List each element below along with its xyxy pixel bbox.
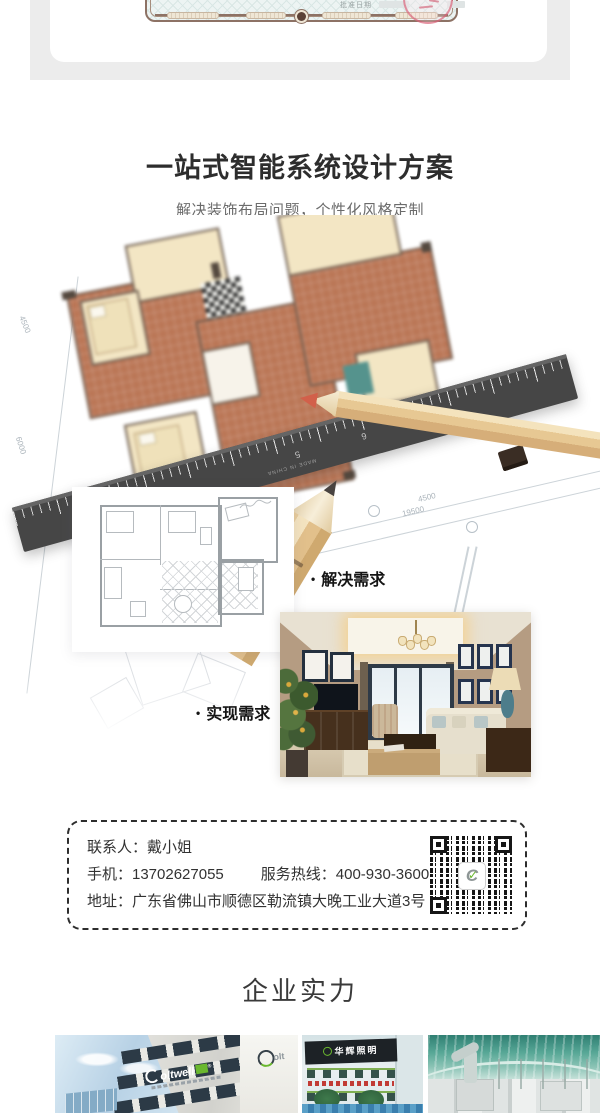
building-tower bbox=[395, 1035, 423, 1113]
strength-gallery: oltwell® olt 华辉照明 bbox=[0, 1035, 600, 1113]
contact-phone: 手机：13702627055 bbox=[87, 866, 224, 883]
fascia-logo: olt bbox=[257, 1045, 294, 1078]
bead-segment bbox=[246, 12, 286, 19]
dimension-label: 4500 bbox=[17, 315, 32, 335]
bullet-icon: • bbox=[196, 706, 200, 720]
ruler-number: 6 bbox=[360, 431, 368, 442]
certificate-card: 批准日期 bbox=[50, 0, 547, 62]
machine-unit bbox=[456, 1079, 494, 1111]
dimension-label: 6000 bbox=[14, 436, 28, 456]
label-realize-requirement: •实现需求 bbox=[196, 700, 270, 724]
contact-address: 地址：广东省佛山市顺德区勒流镇大晚工业大道3号 bbox=[87, 888, 429, 915]
ottoman bbox=[368, 749, 440, 775]
page: 批准日期 一站式智能系统设计方案 解决装饰布局问题，个性化风格定制 bbox=[0, 0, 600, 1113]
duct-pipe bbox=[464, 1051, 477, 1083]
qr-logo-check-icon: ✓ bbox=[468, 868, 478, 882]
vertical-pipes bbox=[498, 1059, 598, 1089]
handwriting-squiggle bbox=[238, 497, 274, 513]
wall-frame bbox=[330, 652, 354, 682]
fascia-brand-text: olt bbox=[273, 1051, 285, 1062]
sketch-floorplan-image bbox=[72, 487, 294, 652]
dimension-label: 4500 bbox=[417, 491, 436, 504]
window-row bbox=[307, 1068, 395, 1078]
bullet-icon: • bbox=[311, 572, 315, 586]
contact-person: 联系人：戴小姐 bbox=[87, 834, 429, 861]
ruler-number: 5 bbox=[294, 449, 302, 460]
gallery-image-office-building: oltwell® olt bbox=[55, 1035, 298, 1113]
dimension-circle bbox=[368, 505, 380, 517]
brand-reg-mark: ® bbox=[207, 1063, 212, 1070]
label-realize-text: 实现需求 bbox=[206, 706, 270, 723]
flower-ornament-icon bbox=[297, 12, 306, 21]
sign-logo-icon bbox=[323, 1047, 332, 1056]
qr-code: C ✓ bbox=[430, 836, 512, 914]
red-stamp-icon bbox=[403, 0, 453, 24]
contact-phone-line: 手机：13702627055服务热线：400-930-3600 bbox=[87, 861, 429, 888]
blue-awning bbox=[302, 1104, 423, 1113]
armchair bbox=[372, 704, 398, 738]
storefront-glass bbox=[65, 1088, 117, 1113]
qr-finder-icon bbox=[430, 897, 447, 914]
table-lamp-shade bbox=[489, 668, 521, 690]
sign-text: 华辉照明 bbox=[334, 1045, 378, 1057]
certificate-approval-label: 批准日期 bbox=[340, 0, 372, 10]
contact-card: 联系人：戴小姐 手机：13702627055服务热线：400-930-3600 … bbox=[67, 820, 527, 930]
qr-finder-icon bbox=[495, 836, 512, 853]
strength-section-title: 企业实力 bbox=[0, 971, 600, 1008]
contact-hotline: 服务热线：400-930-3600 bbox=[261, 866, 429, 883]
bead-segment bbox=[167, 12, 219, 19]
qr-center-logo-icon: C ✓ bbox=[458, 862, 486, 890]
dimension-label: 19500 bbox=[401, 505, 425, 519]
sketch-plan bbox=[90, 497, 276, 639]
plant-flowers bbox=[282, 674, 316, 744]
section-title: 一站式智能系统设计方案 bbox=[0, 146, 600, 185]
chandelier bbox=[398, 620, 434, 654]
gallery-image-workshop-interior bbox=[428, 1035, 600, 1113]
top-gray-band: 批准日期 bbox=[30, 0, 570, 80]
side-table bbox=[486, 728, 531, 772]
label-solve-requirement: •解决需求 bbox=[311, 566, 385, 590]
plant-pot bbox=[286, 750, 308, 777]
factory-sign: 华辉照明 bbox=[305, 1038, 398, 1064]
red-slogan-text bbox=[308, 1081, 394, 1086]
contact-lines: 联系人：戴小姐 手机：13702627055服务热线：400-930-3600 … bbox=[87, 834, 429, 915]
certificate-image: 批准日期 bbox=[145, 0, 458, 22]
bead-segment bbox=[322, 12, 371, 19]
gallery-image-factory-building: 华辉照明 bbox=[302, 1035, 423, 1113]
living-room-photo bbox=[280, 612, 531, 777]
table-lamp-base bbox=[501, 690, 514, 718]
qr-finder-icon bbox=[430, 836, 447, 853]
brand-c-ring-icon bbox=[144, 1068, 160, 1084]
label-solve-text: 解决需求 bbox=[321, 572, 385, 589]
dimension-circle bbox=[466, 521, 478, 533]
